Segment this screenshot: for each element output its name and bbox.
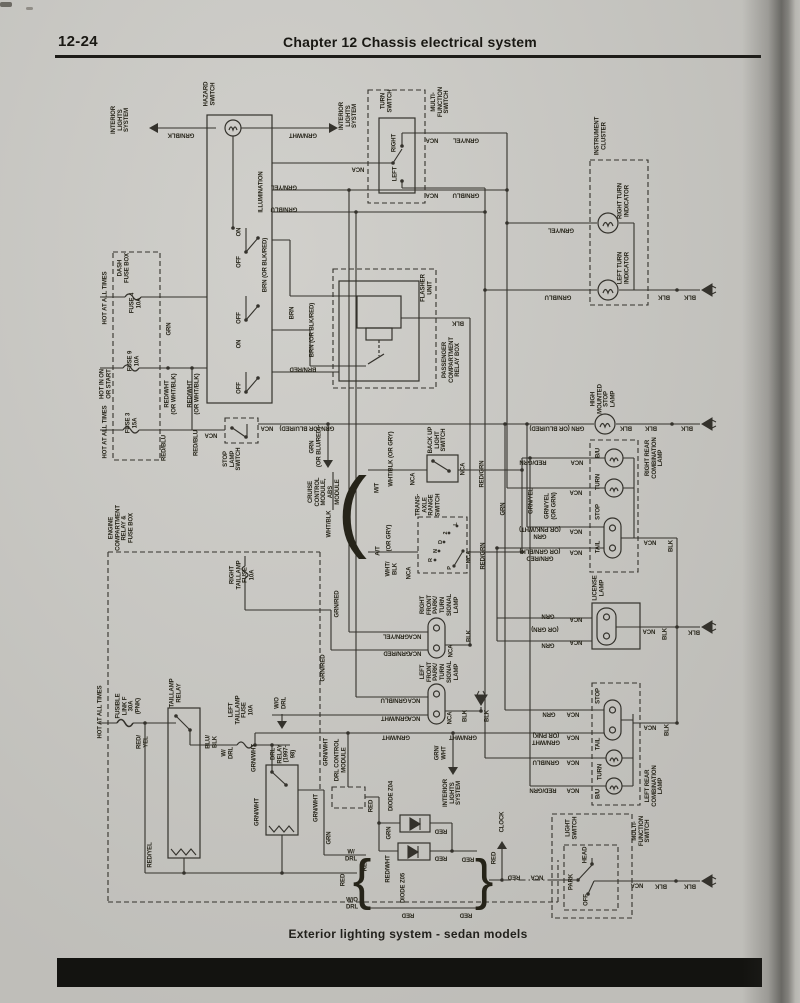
engine-compartment-relay-fuse-box	[108, 552, 558, 902]
switch-arm-lines	[246, 228, 258, 392]
drl-control-module-box	[332, 787, 365, 808]
flasher-relay-contact	[366, 328, 392, 340]
fuse-4-icon	[125, 294, 141, 300]
rr-stop-tail-bulb-icon	[604, 518, 621, 558]
right-taillamp-fuse-icon	[242, 566, 248, 578]
instrument-cluster-box	[590, 160, 648, 305]
right-turn-indicator-bulb-icon	[598, 213, 618, 233]
junction-dots	[143, 144, 679, 896]
lf-park-turn-bulb-icon	[428, 684, 445, 724]
diode-icons	[408, 818, 420, 858]
lr-stop-tail-bulb-icon	[604, 700, 621, 740]
fuse-icons	[117, 294, 253, 748]
arrow-up-icon	[497, 841, 507, 849]
drl-relay-box	[266, 765, 298, 835]
footer-bar	[57, 958, 762, 987]
dash-fuse-box	[113, 252, 160, 460]
fuse-9-icon	[123, 365, 139, 371]
ground-icon	[702, 875, 716, 887]
bulb-icons	[225, 120, 623, 794]
fuse-3-icon	[123, 427, 139, 433]
multi-function-switch-box	[368, 90, 425, 203]
manual-page: 12-24 Chapter 12 Chassis electrical syst…	[0, 0, 800, 1003]
lr-turn-bulb-icon	[606, 750, 622, 766]
wiring-diagram-svg	[0, 0, 800, 1003]
left-turn-indicator-bulb-icon	[598, 280, 618, 300]
dashed-boxes	[108, 90, 648, 918]
backup-light-switch-box	[427, 455, 458, 482]
hazard-switch-box	[207, 115, 272, 403]
ground-icon	[702, 418, 716, 430]
relay-coil-icons	[171, 826, 294, 855]
fusible-link-icon	[117, 720, 133, 727]
taillamp-relay-box	[168, 708, 200, 858]
license-lamp-bulb-icon	[597, 608, 616, 645]
ground-icon	[702, 621, 716, 633]
diagram-caption: Exterior lighting system - sedan models	[150, 928, 666, 940]
arrow-down-icon	[323, 460, 333, 468]
arrow-down-icon	[277, 721, 287, 729]
ground-icon	[702, 284, 716, 296]
left-taillamp-fuse-icon	[237, 742, 253, 748]
illumination-bulb-icon	[225, 120, 241, 136]
rf-park-turn-bulb-icon	[428, 618, 445, 658]
rr-turn-bulb-icon	[605, 479, 623, 497]
transaxle-range-switch-box	[418, 517, 467, 573]
stop-lamp-switch-box	[225, 418, 258, 443]
arrow-right-icon	[329, 123, 338, 133]
lr-backup-bulb-icon	[606, 778, 622, 794]
turn-switch-box	[379, 118, 415, 193]
flasher-relay-core	[357, 296, 401, 328]
high-mounted-stop-lamp-bulb-icon	[595, 414, 615, 434]
ground-icons	[475, 284, 716, 887]
rr-backup-bulb-icon	[605, 449, 623, 467]
light-switch-box	[564, 845, 618, 910]
arrow-down-icon	[448, 767, 458, 775]
arrow-left-icon	[149, 123, 158, 133]
